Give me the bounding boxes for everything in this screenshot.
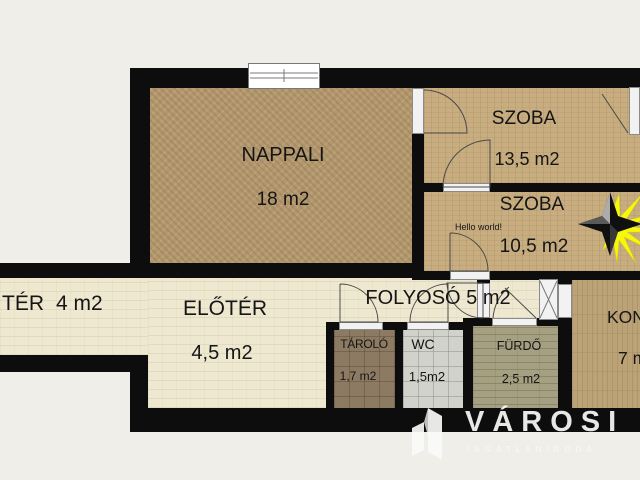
wall xyxy=(0,263,424,278)
balcony-name: TÉR xyxy=(2,292,44,315)
eloter-name-label: ELŐTÉR xyxy=(183,297,267,321)
door-nappali-szoba xyxy=(412,88,424,134)
varosi-brand-text: VÁROSI xyxy=(465,406,624,439)
varosi-subtitle-text: INGATLANIRODA xyxy=(467,445,597,454)
wall xyxy=(326,322,334,412)
wall xyxy=(463,318,473,412)
balcony-floor xyxy=(0,278,148,355)
door-tarolo xyxy=(339,322,383,330)
balcony-label: TÉR4 m2 xyxy=(2,292,103,316)
balcony-area: 4 m2 xyxy=(56,292,103,315)
konyha-floor xyxy=(572,280,640,410)
furdo-name-label: FÜRDŐ xyxy=(497,339,541,353)
varosi-logo-icon xyxy=(408,402,454,464)
wall xyxy=(412,271,640,280)
konyha-name-label: KON xyxy=(607,307,640,328)
hello-world-note: Hello world! xyxy=(455,222,502,232)
door-szoba-szoba xyxy=(443,183,490,192)
wall xyxy=(395,322,403,412)
konyha-area-label: 7 m xyxy=(618,348,640,369)
door-wc xyxy=(407,322,449,330)
szoba-top-area-label: 13,5 m2 xyxy=(494,149,559,170)
furdo-area-label: 2,5 m2 xyxy=(502,372,540,386)
door-right-edge xyxy=(629,87,640,135)
szoba-mid-area-label: 10,5 m2 xyxy=(500,236,569,258)
folyoso-label: FOLYOSÓ 5 m2 xyxy=(365,287,510,310)
nappali-name-label: NAPPALI xyxy=(242,144,325,167)
nappali-area-label: 18 m2 xyxy=(257,189,310,211)
door-furdo xyxy=(492,318,537,326)
wc-name-label: WC xyxy=(411,336,434,352)
door-konyha-gap xyxy=(558,284,572,318)
wall xyxy=(130,68,640,88)
floor-plan: NAPPALI 18 m2 SZOBA 13,5 m2 SZOBA Hello … xyxy=(0,0,640,480)
wall xyxy=(0,355,148,372)
tarolo-name-label: TÁROLÓ xyxy=(340,337,388,351)
wall xyxy=(130,68,150,263)
eloter-area-label: 4,5 m2 xyxy=(191,342,252,365)
nappali-floor xyxy=(150,88,412,263)
wc-area-label: 1,5m2 xyxy=(409,369,445,384)
szoba-top-name-label: SZOBA xyxy=(492,108,556,130)
door-folyoso-szoba xyxy=(450,271,490,280)
szoba-mid-name-label: SZOBA xyxy=(500,194,564,216)
window xyxy=(248,63,320,89)
door-konyha-leaf xyxy=(539,279,558,320)
tarolo-area-label: 1,7 m2 xyxy=(340,369,377,383)
